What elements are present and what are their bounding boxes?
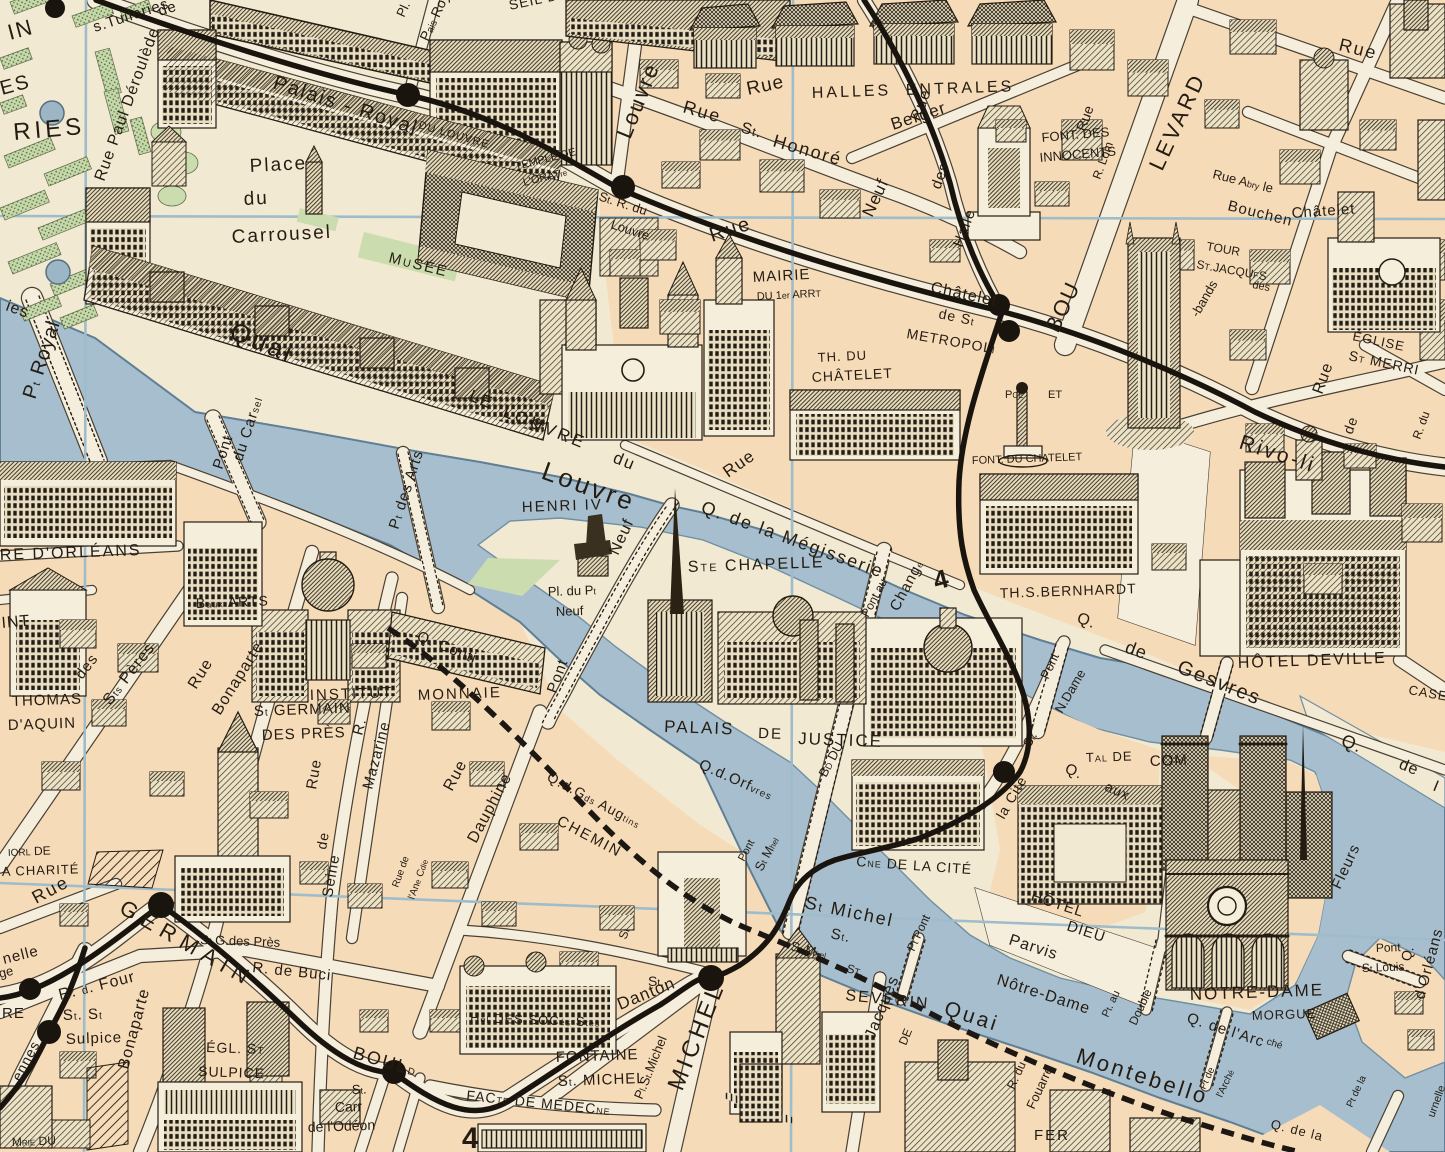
svg-text:FONTAINE: FONTAINE — [556, 1046, 639, 1066]
svg-text:Sulpice: Sulpice — [66, 1029, 123, 1048]
svg-text:St.Louis: St.Louis — [1362, 960, 1405, 975]
svg-text:A CHARITÉ: A CHARITÉ — [2, 861, 80, 879]
svg-text:INT: INT — [1, 613, 31, 632]
svg-text:SULPICE: SULPICE — [198, 1063, 265, 1081]
svg-text:de l'Odéon: de l'Odéon — [308, 1117, 376, 1135]
svg-text:Neuf: Neuf — [556, 603, 584, 619]
svg-text:HENRI IV: HENRI IV — [522, 496, 604, 516]
svg-text:de: de — [313, 830, 332, 850]
svg-text:FER: FER — [1034, 1127, 1070, 1144]
svg-text:St. St: St. St — [63, 1006, 103, 1024]
svg-text:du: du — [243, 188, 269, 210]
svg-text:HALLES: HALLES — [812, 82, 892, 102]
svg-text:Place: Place — [249, 153, 308, 177]
svg-text:MONNAIE: MONNAIE — [418, 684, 503, 704]
svg-text:DES PRÈS: DES PRÈS — [262, 724, 346, 744]
svg-text:Pl. du Pt: Pl. du Pt — [548, 582, 597, 599]
svg-text:MAIRIE: MAIRIE — [752, 266, 810, 286]
svg-text:TH. DU: TH. DU — [817, 347, 867, 365]
svg-text:DE: DE — [758, 725, 783, 743]
svg-text:THOMAS: THOMAS — [12, 691, 83, 710]
svg-text:D'AQUIN: D'AQUIN — [8, 715, 77, 734]
svg-text:JUSTICE: JUSTICE — [798, 729, 883, 751]
svg-text:Pont: Pont — [1376, 940, 1402, 955]
svg-text:St.: St. — [648, 973, 664, 989]
svg-text:TAL DE: TAL DE — [1086, 748, 1133, 765]
svg-text:4: 4 — [462, 1122, 479, 1152]
svg-text:St.: St. — [352, 1081, 367, 1097]
svg-text:MORGUE: MORGUE — [1252, 1006, 1317, 1023]
svg-text:Carr: Carr — [335, 1098, 363, 1115]
svg-text:RE: RE — [2, 1005, 25, 1022]
svg-text:PCE: PCE — [1005, 389, 1023, 401]
svg-text:COM: COM — [1150, 752, 1189, 770]
svg-text:ET: ET — [1048, 389, 1062, 401]
svg-text:ÉGL. ST: ÉGL. ST — [206, 1039, 265, 1057]
svg-text:PALAIS: PALAIS — [664, 717, 735, 738]
svg-text:INSTITUT: INSTITUT — [310, 684, 394, 704]
